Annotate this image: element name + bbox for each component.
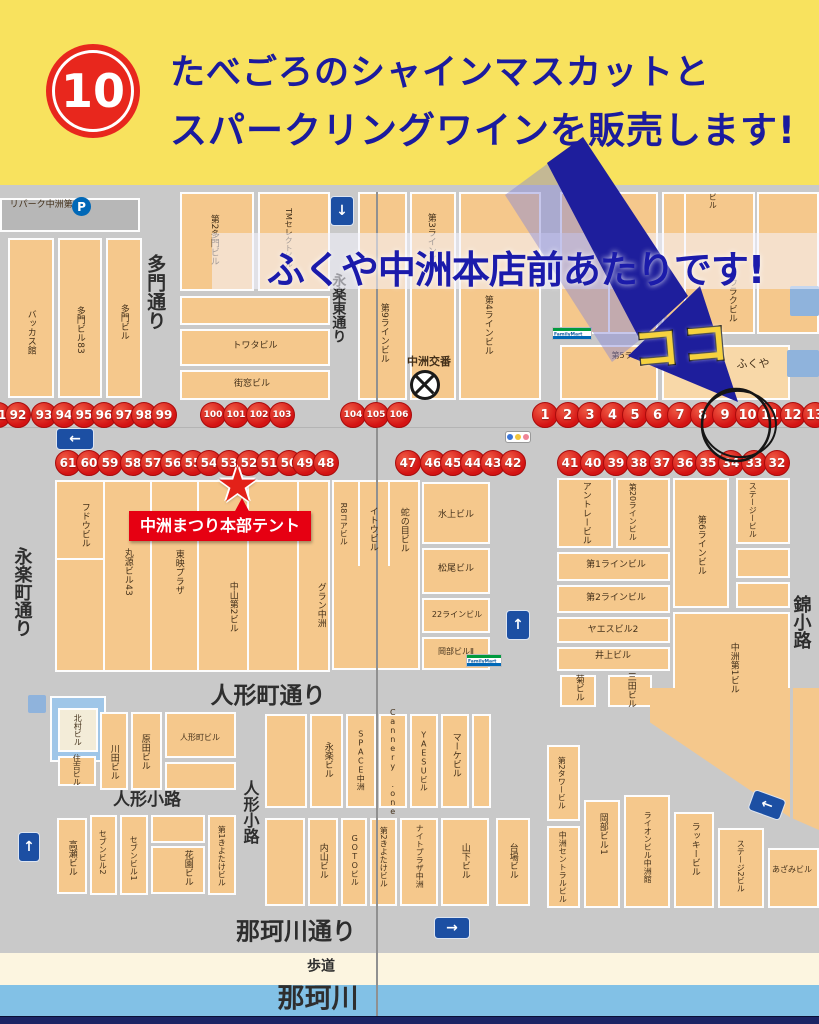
map-line bbox=[388, 480, 390, 566]
building-label: 水上ビル bbox=[438, 511, 474, 521]
building-label: 高瀬ビル bbox=[66, 840, 76, 876]
building-label: 山下ビル bbox=[459, 843, 469, 879]
building-label: 街窓ビル bbox=[234, 380, 270, 390]
booth-number-badge: 10 bbox=[46, 44, 140, 138]
booth-number-row: 12345678910111213 bbox=[532, 402, 819, 428]
building-label: 多門ビル83 bbox=[74, 306, 84, 353]
map-blue-rect bbox=[28, 695, 46, 713]
map-line bbox=[297, 480, 299, 672]
building-label: 三田ビル bbox=[625, 672, 635, 708]
building-label: 菊ビル bbox=[573, 675, 583, 702]
building-label: 花園ビル bbox=[182, 850, 192, 886]
street-label: 錦小路 bbox=[791, 595, 810, 649]
building-label: GOTOビル bbox=[350, 834, 358, 886]
map-block bbox=[358, 192, 407, 400]
building-label: 中山第2ビル bbox=[227, 582, 237, 633]
booth-number: 103 bbox=[269, 402, 295, 428]
building-label: R8コアビル bbox=[339, 503, 347, 546]
badge-number: 10 bbox=[46, 44, 140, 138]
map-line bbox=[103, 480, 105, 672]
familymart-sign: FamilyMart bbox=[552, 327, 592, 340]
signal-dot bbox=[523, 434, 529, 440]
building-label: 第20ラインビル bbox=[628, 483, 636, 541]
booth-number-row: 100101102103 bbox=[200, 402, 295, 428]
building-label: 中洲交番 bbox=[407, 356, 451, 368]
river-edge-strip bbox=[0, 1016, 819, 1024]
building-label: 第2タワービル bbox=[557, 756, 565, 809]
booth-number: 48 bbox=[313, 450, 339, 476]
map-block bbox=[472, 714, 491, 808]
booth-number-row: 58575655 bbox=[120, 450, 206, 476]
booth-number-row: 41403938373635343332 bbox=[557, 450, 790, 476]
building-label: 台場ビル bbox=[507, 843, 517, 879]
map-block bbox=[180, 296, 330, 325]
walkway-band bbox=[0, 953, 819, 985]
booth-number-row: 4645444342 bbox=[420, 450, 526, 476]
building-label: 第2きよたけビル bbox=[379, 826, 387, 887]
direction-sign: ↓ bbox=[330, 196, 354, 226]
map-line bbox=[150, 480, 152, 672]
booth-number: 42 bbox=[500, 450, 526, 476]
building-label: 蛇の目ビル bbox=[398, 508, 408, 553]
map-line bbox=[358, 480, 360, 566]
map-block bbox=[459, 192, 541, 400]
building-label: リパーク中洲第2 bbox=[10, 201, 79, 211]
building-label: 東映プラザ bbox=[173, 550, 183, 595]
familymart-blue-stripe bbox=[467, 663, 501, 666]
map-block bbox=[736, 478, 790, 544]
building-label: グラン中洲 bbox=[315, 583, 325, 628]
building-label: 永楽ビル bbox=[322, 742, 332, 778]
festival-map-flyer: 10 たべごろのシャインマスカットと スパークリングワインを販売します! 多門通… bbox=[0, 0, 819, 1024]
building-label: イトウビル bbox=[367, 507, 377, 552]
building-label: ビル bbox=[708, 193, 716, 209]
booth-number-row: 104105106 bbox=[340, 402, 412, 428]
building-label: ライオンビル中洲館 bbox=[643, 811, 651, 883]
police-box-icon bbox=[410, 370, 440, 400]
traffic-signal-icon bbox=[505, 431, 531, 443]
hq-tent-label: 中洲まつり本部テント bbox=[129, 511, 311, 541]
street-label: 永楽町通り bbox=[12, 547, 31, 637]
familymart-sign: FamilyMart bbox=[466, 654, 502, 667]
direction-sign: ↑ bbox=[18, 832, 40, 862]
building-label: ふくや bbox=[737, 358, 770, 370]
building-label: ビル bbox=[593, 193, 601, 209]
building-label: 第2ラインビル bbox=[586, 594, 646, 604]
building-label: あざみビル bbox=[772, 866, 812, 874]
map-block bbox=[151, 815, 205, 843]
booth-number-row: 9192 bbox=[0, 402, 31, 428]
banner-line-1: たべごろのシャインマスカットと bbox=[170, 44, 710, 95]
direction-sign: ← bbox=[56, 428, 94, 450]
koko-marker: ココ bbox=[630, 306, 733, 380]
booth-number-row: 47 bbox=[395, 450, 421, 476]
booth-number: 92 bbox=[5, 402, 31, 428]
building-label: 川田ビル bbox=[108, 744, 118, 780]
street-label: 那珂川通り bbox=[236, 919, 356, 944]
building-label: 北村ビル bbox=[73, 714, 81, 746]
booth-number: 106 bbox=[386, 402, 412, 428]
map-block bbox=[151, 846, 205, 894]
street-label: 人形小路 bbox=[241, 780, 258, 844]
map-blue-rect bbox=[787, 350, 819, 377]
signal-dot bbox=[507, 434, 513, 440]
building-label: 第6ラインビル bbox=[695, 515, 705, 575]
callout-text: ふくや中洲本店前あたりです! bbox=[212, 239, 819, 294]
building-label: セブンビル1 bbox=[129, 835, 137, 880]
direction-sign: ↑ bbox=[506, 610, 530, 640]
booth-number: 99 bbox=[151, 402, 177, 428]
river-band bbox=[0, 985, 819, 1018]
building-label: セブンビル2 bbox=[98, 829, 106, 874]
map-block bbox=[616, 478, 670, 548]
building-label: ステージービル bbox=[748, 482, 756, 538]
familymart-blue-stripe bbox=[553, 336, 591, 339]
building-label: 原田ビル bbox=[139, 734, 149, 770]
building-label: Cannery .one bbox=[388, 708, 396, 816]
booth-number-row: 616059 bbox=[55, 450, 123, 476]
banner-line-2: スパークリングワインを販売します! bbox=[170, 100, 796, 154]
map-block bbox=[736, 582, 790, 608]
building-label: 住吉ビル bbox=[72, 754, 80, 786]
booth-number-row: 4948 bbox=[292, 450, 339, 476]
building-label: ヤエスビル2 bbox=[588, 626, 639, 636]
street-label: 人形町通り bbox=[211, 684, 326, 708]
booth-number: 47 bbox=[395, 450, 421, 476]
building-label: フドウビル bbox=[79, 503, 89, 548]
signal-dot bbox=[515, 434, 521, 440]
map-block bbox=[265, 818, 305, 906]
building-label: 中洲第1ビル bbox=[728, 643, 738, 694]
building-label: 内山ビル bbox=[317, 843, 327, 879]
booth-number-row: 93949596979899 bbox=[31, 402, 177, 428]
building-label: 人形町ビル bbox=[180, 734, 220, 742]
direction-sign: → bbox=[434, 917, 470, 939]
street-label: 人形小路 bbox=[113, 791, 181, 809]
banner: 10 たべごろのシャインマスカットと スパークリングワインを販売します! bbox=[0, 0, 819, 185]
map-line bbox=[197, 480, 199, 672]
booth-number: 32 bbox=[764, 450, 790, 476]
familymart-green-stripe bbox=[467, 655, 501, 658]
building-label: 中洲セントラルビル bbox=[558, 831, 566, 903]
building-label: SPACE中洲 bbox=[356, 730, 364, 791]
street-label: 那珂川 bbox=[278, 986, 359, 1015]
map-block bbox=[793, 688, 819, 830]
building-label: 第4ラインビル bbox=[482, 295, 492, 355]
map-line bbox=[55, 558, 105, 560]
building-label: 多門ビル bbox=[118, 304, 128, 340]
parking-icon: P bbox=[72, 197, 91, 216]
building-label: ナイトプラザ中洲 bbox=[415, 824, 423, 888]
building-label: 松尾ビル bbox=[438, 565, 474, 575]
booth-number: 13 bbox=[802, 402, 819, 428]
building-label: ステージ2ビル bbox=[736, 839, 744, 892]
map-block bbox=[165, 762, 236, 790]
map-block bbox=[768, 848, 819, 908]
building-label: 岡部ビル1 bbox=[597, 813, 607, 855]
map-block bbox=[736, 548, 790, 578]
building-label: 第1ラインビル bbox=[586, 561, 646, 571]
street-label: 歩道 bbox=[307, 960, 335, 975]
map-block bbox=[55, 480, 330, 672]
building-label: 井上ビル bbox=[595, 652, 631, 662]
building-label: アントレービル bbox=[580, 482, 590, 545]
building-label: 22ラインビル bbox=[432, 611, 482, 619]
building-label: 丸源ビル43 bbox=[122, 548, 132, 595]
map-block bbox=[265, 714, 307, 808]
building-label: 第9ラインビル bbox=[378, 303, 388, 363]
building-label: 第1きよたけビル bbox=[217, 825, 225, 886]
street-label: 多門通り bbox=[145, 254, 165, 330]
building-label: バッカス館 bbox=[25, 310, 35, 355]
building-label: YAESUビル bbox=[419, 731, 427, 792]
building-label: トワタビル bbox=[232, 342, 277, 352]
building-label: ラッキービル bbox=[689, 822, 699, 876]
building-label: マーケビル bbox=[450, 733, 460, 778]
familymart-green-stripe bbox=[553, 328, 591, 331]
